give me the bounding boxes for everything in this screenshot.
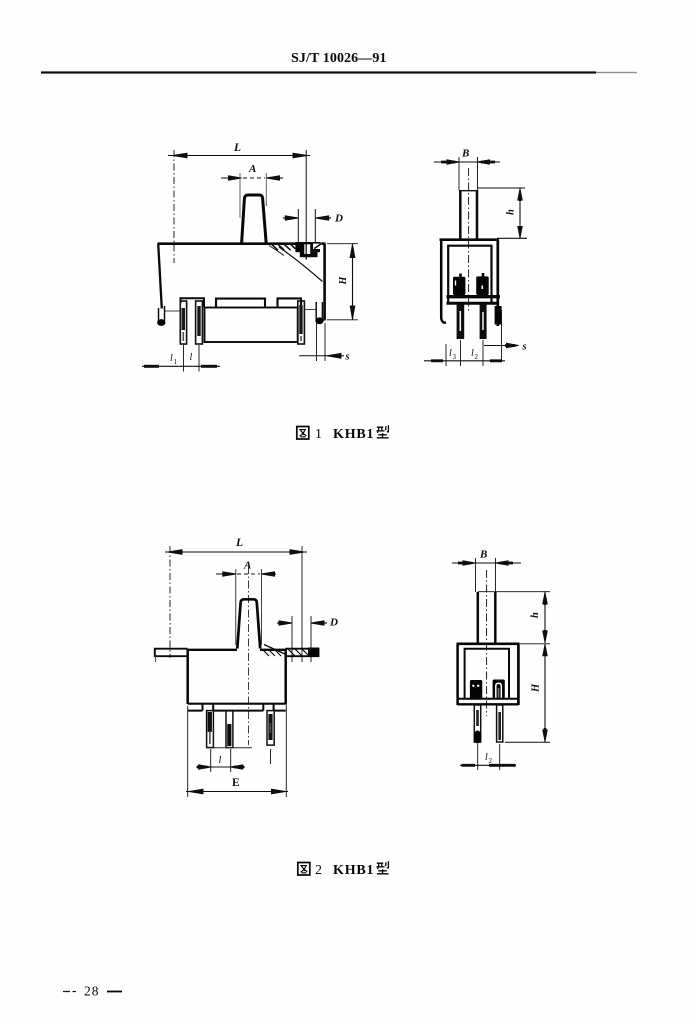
svg-text:1: 1	[315, 427, 322, 442]
svg-text:A: A	[248, 163, 256, 175]
svg-text:2: 2	[489, 757, 493, 765]
svg-text:l: l	[190, 352, 193, 363]
svg-text:H: H	[531, 683, 542, 693]
svg-text:s: s	[345, 352, 350, 363]
svg-text:B: B	[479, 549, 487, 561]
svg-text:s: s	[522, 342, 527, 353]
svg-text:L: L	[233, 142, 241, 154]
svg-text:h: h	[530, 612, 541, 618]
svg-text:SJ/T 10026—91: SJ/T 10026—91	[291, 51, 387, 66]
svg-text:3: 3	[453, 353, 457, 361]
svg-text:2: 2	[475, 353, 479, 361]
svg-text:B: B	[461, 148, 469, 160]
svg-text:KHB1: KHB1	[333, 863, 374, 878]
svg-text:D: D	[329, 617, 338, 629]
svg-text:28: 28	[84, 984, 100, 999]
svg-text:A: A	[243, 560, 251, 572]
svg-text:h: h	[506, 209, 517, 215]
svg-text:E: E	[232, 777, 240, 789]
svg-text:1: 1	[174, 358, 178, 366]
svg-text:2: 2	[315, 863, 322, 878]
svg-text:D: D	[334, 213, 343, 225]
svg-text:l: l	[219, 755, 222, 766]
svg-text:L: L	[235, 537, 243, 549]
svg-text:KHB1: KHB1	[333, 427, 374, 442]
svg-text:H: H	[338, 276, 349, 286]
